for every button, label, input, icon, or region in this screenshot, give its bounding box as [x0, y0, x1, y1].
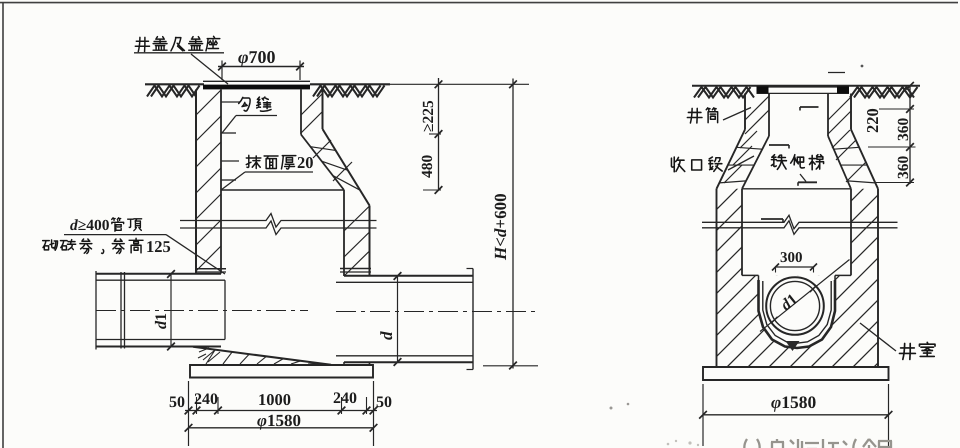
svg-text:220: 220 — [863, 108, 882, 133]
svg-text:1000: 1000 — [258, 390, 291, 409]
svg-text:20: 20 — [297, 153, 314, 172]
svg-text:φ1580: φ1580 — [257, 411, 301, 430]
svg-text:d≥400: d≥400 — [70, 217, 110, 234]
svg-text:50: 50 — [376, 394, 392, 411]
svg-text:360: 360 — [895, 156, 912, 180]
svg-text:240: 240 — [333, 390, 357, 407]
svg-text:φ1580: φ1580 — [771, 392, 817, 412]
svg-text:φ700: φ700 — [238, 47, 276, 67]
svg-text:480: 480 — [419, 155, 436, 179]
svg-text:300: 300 — [780, 250, 803, 266]
svg-text:d: d — [377, 331, 396, 340]
svg-text:H<d+600: H<d+600 — [491, 193, 510, 261]
svg-text:240: 240 — [194, 391, 218, 408]
svg-text:≥225: ≥225 — [420, 100, 437, 132]
svg-text:360: 360 — [895, 118, 912, 142]
svg-text:125: 125 — [146, 237, 171, 256]
svg-text:50: 50 — [169, 394, 185, 411]
svg-text:d1: d1 — [153, 313, 170, 329]
